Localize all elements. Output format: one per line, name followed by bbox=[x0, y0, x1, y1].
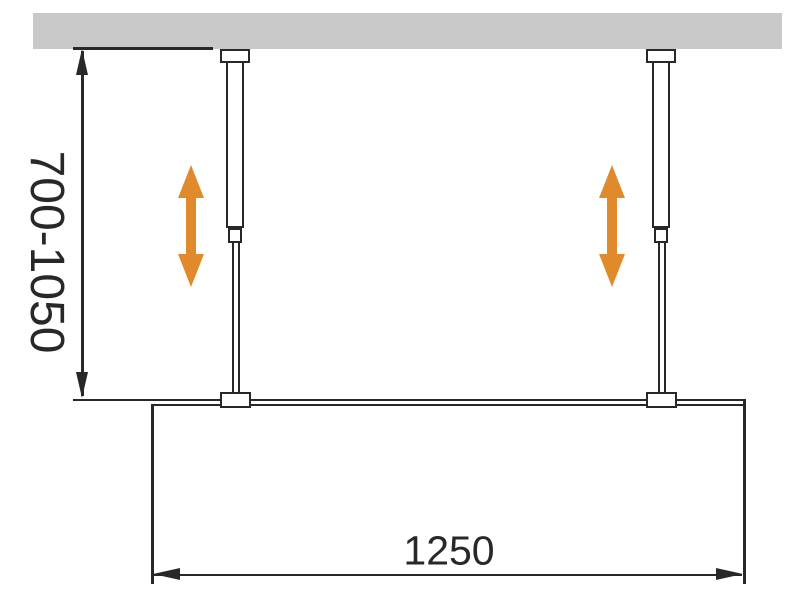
glass-panel-left-edge bbox=[151, 404, 154, 584]
width-dimension-arrow-right-icon bbox=[716, 568, 743, 580]
height-dimension-arrow-down-icon bbox=[76, 372, 88, 398]
width-dimension-arrow-left-icon bbox=[153, 568, 180, 580]
support-bar-right-ceiling-bracket bbox=[646, 49, 676, 63]
height-adjust-arrow-right-icon bbox=[598, 164, 626, 288]
height-dimension-arrow-up-icon bbox=[76, 49, 88, 75]
height-dimension-text: 700-1050 bbox=[22, 151, 70, 354]
support-bar-left-lower-rod bbox=[232, 240, 240, 393]
ceiling-extension-line bbox=[73, 47, 213, 50]
support-bar-right-upper-tube bbox=[652, 62, 670, 228]
width-dimension-text: 1250 bbox=[403, 531, 494, 572]
height-dimension-line bbox=[81, 51, 84, 396]
support-bar-left-glass-clamp bbox=[220, 392, 251, 408]
glass-panel-right-edge bbox=[743, 399, 746, 584]
support-bar-left-adjustment-collar bbox=[228, 228, 242, 243]
ceiling-slab bbox=[33, 13, 782, 49]
support-bar-right-glass-clamp bbox=[646, 392, 677, 408]
diagram-canvas: 700-1050 1250 bbox=[0, 0, 800, 599]
support-bar-right-lower-rod bbox=[658, 240, 666, 393]
glass-panel-top-edge bbox=[73, 399, 745, 402]
width-dimension-line bbox=[154, 574, 742, 577]
support-bar-left-upper-tube bbox=[226, 62, 244, 228]
height-adjust-arrow-left-icon bbox=[177, 164, 205, 288]
support-bar-left-ceiling-bracket bbox=[220, 49, 250, 63]
support-bar-right-adjustment-collar bbox=[654, 228, 668, 243]
